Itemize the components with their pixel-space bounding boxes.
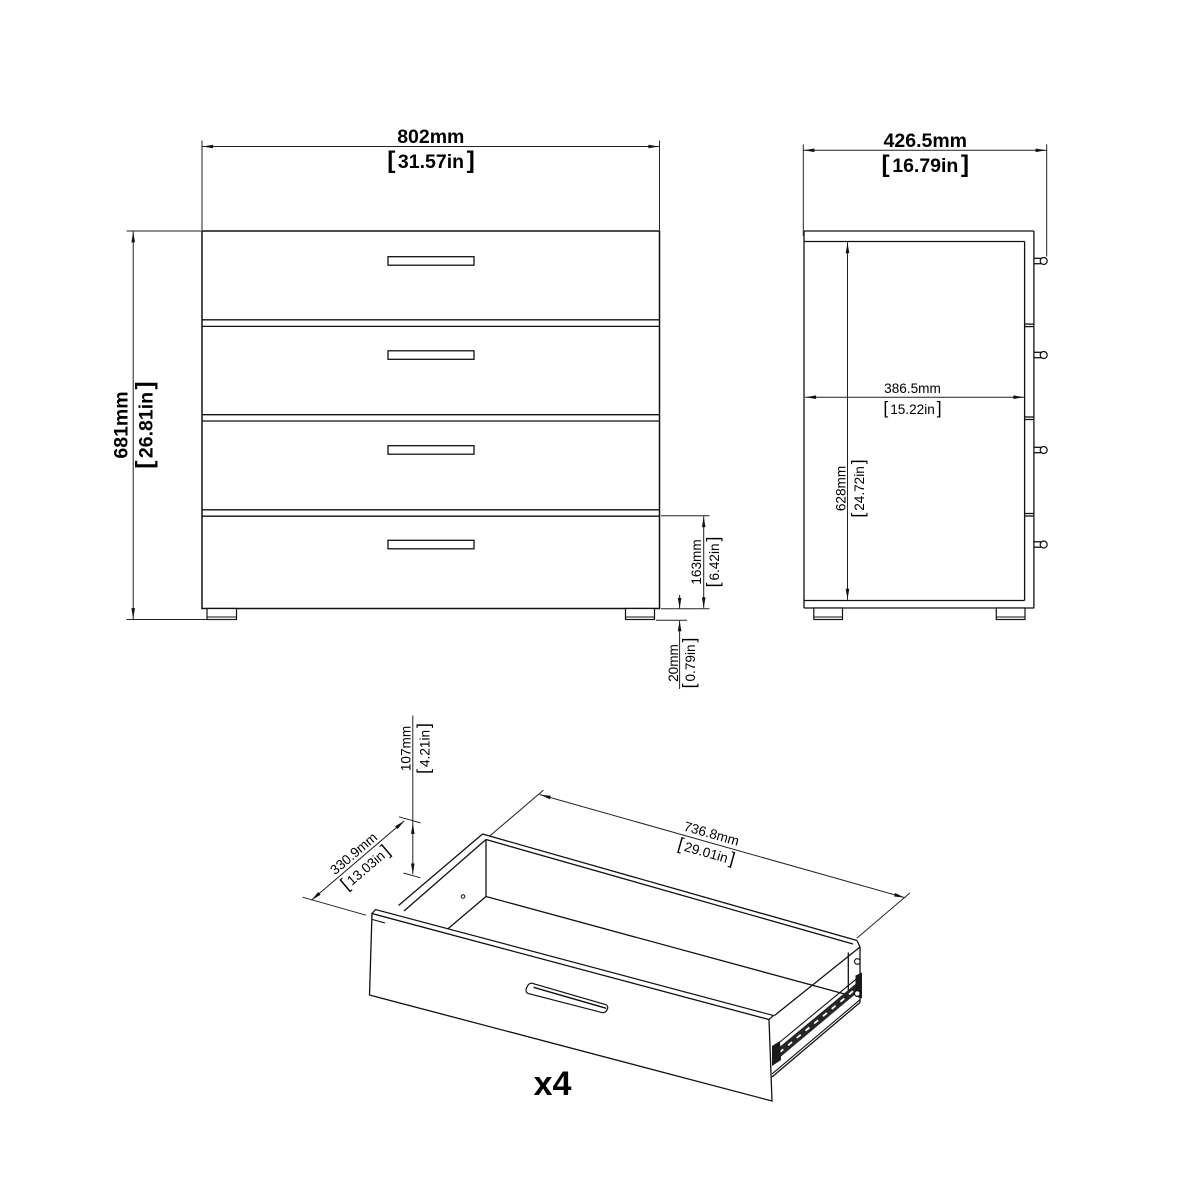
- svg-text:107mm: 107mm: [399, 726, 414, 771]
- svg-text:163mm: 163mm: [689, 539, 704, 584]
- svg-text:802mm: 802mm: [397, 126, 464, 148]
- svg-text:628mm: 628mm: [834, 466, 849, 511]
- svg-text:386.5mm: 386.5mm: [884, 381, 941, 396]
- svg-text:681mm: 681mm: [111, 391, 133, 458]
- svg-text:20mm: 20mm: [666, 644, 681, 682]
- svg-text:[31.57in]: [31.57in]: [387, 147, 474, 174]
- svg-text:[26.81in]: [26.81in]: [132, 381, 159, 468]
- svg-text:426.5mm: 426.5mm: [884, 130, 967, 152]
- svg-text:[16.79in]: [16.79in]: [882, 151, 969, 178]
- svg-text:x4: x4: [534, 1065, 572, 1103]
